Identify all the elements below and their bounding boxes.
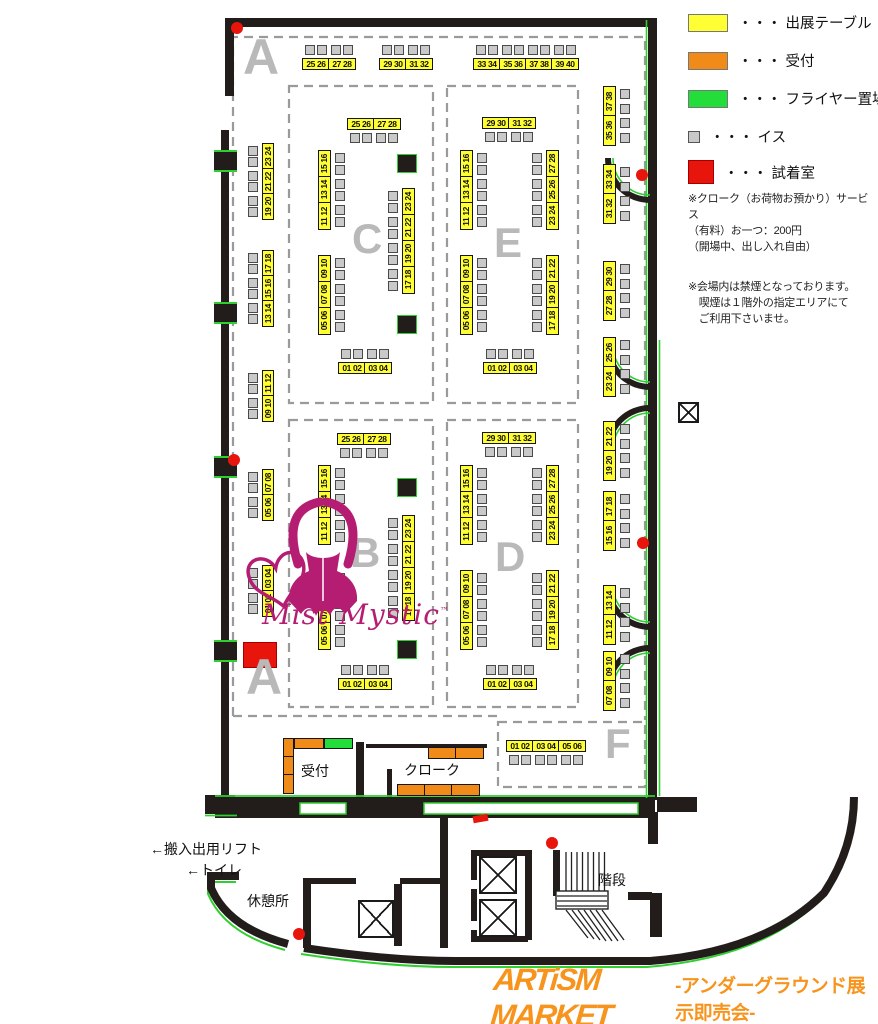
flyer-area-swatch bbox=[688, 90, 728, 108]
legend-label: ・・・ イス bbox=[710, 126, 786, 147]
legend-label: ・・・ 試着室 bbox=[724, 162, 815, 183]
chair-swatch bbox=[688, 131, 700, 143]
trademark-symbol: ™ bbox=[440, 607, 450, 617]
note-cloak-service: ※クローク（お荷物お預かり）サービス （有料）お一つ：200円 （開場中、出し入… bbox=[688, 192, 874, 256]
legend-item-reception: ・・・ 受付 bbox=[688, 50, 876, 71]
lift-label: ←搬入出用リフト bbox=[150, 839, 262, 859]
mist-mystic-text: Mist Mystic bbox=[262, 598, 440, 631]
fitting-room-swatch bbox=[688, 160, 714, 184]
legend-item-exhibit-table: ・・・ 出展テーブル bbox=[688, 12, 876, 33]
legend-item-chair: ・・・ イス bbox=[688, 126, 876, 147]
artism-market-wordmark: ARTiSM MARKET bbox=[489, 962, 670, 1024]
legend-item-flyer-area: ・・・ フライヤー置場 bbox=[688, 88, 876, 109]
exhibit-table-swatch bbox=[688, 14, 728, 32]
rest-area-label: 休憩所 bbox=[247, 891, 289, 911]
legend: ・・・ 出展テーブル ・・・ 受付 ・・・ フライヤー置場 ・・・ イス ・・・… bbox=[688, 12, 876, 201]
mist-mystic-wordmark: Mist Mystic™ bbox=[262, 598, 450, 631]
reception-swatch bbox=[688, 52, 728, 70]
venue-floor-map: 25 2627 2829 3031 3233 3435 3637 3839 40… bbox=[0, 0, 878, 1024]
notes: ※クローク（お荷物お預かり）サービス （有料）お一つ：200円 （開場中、出し入… bbox=[688, 192, 874, 328]
legend-label: ・・・ フライヤー置場 bbox=[738, 88, 878, 109]
event-tagline: -アンダーグラウンド展示即売会- bbox=[675, 971, 878, 1024]
legend-item-fitting-room: ・・・ 試着室 bbox=[688, 160, 876, 184]
legend-label: ・・・ 受付 bbox=[738, 50, 815, 71]
cloak-label: クローク bbox=[404, 760, 460, 780]
stairs-label: 階段 bbox=[598, 870, 626, 890]
event-logo: ARTiSM MARKET -アンダーグラウンド展示即売会- bbox=[492, 962, 878, 1024]
reception-label: 受付 bbox=[301, 761, 329, 781]
toilet-label: ←トイレ bbox=[186, 860, 242, 880]
legend-label: ・・・ 出展テーブル bbox=[738, 12, 872, 33]
note-no-smoking: ※会場内は禁煙となっております。 喫煙は１階外の指定エリアにて ご利用下さいませ… bbox=[688, 280, 874, 328]
